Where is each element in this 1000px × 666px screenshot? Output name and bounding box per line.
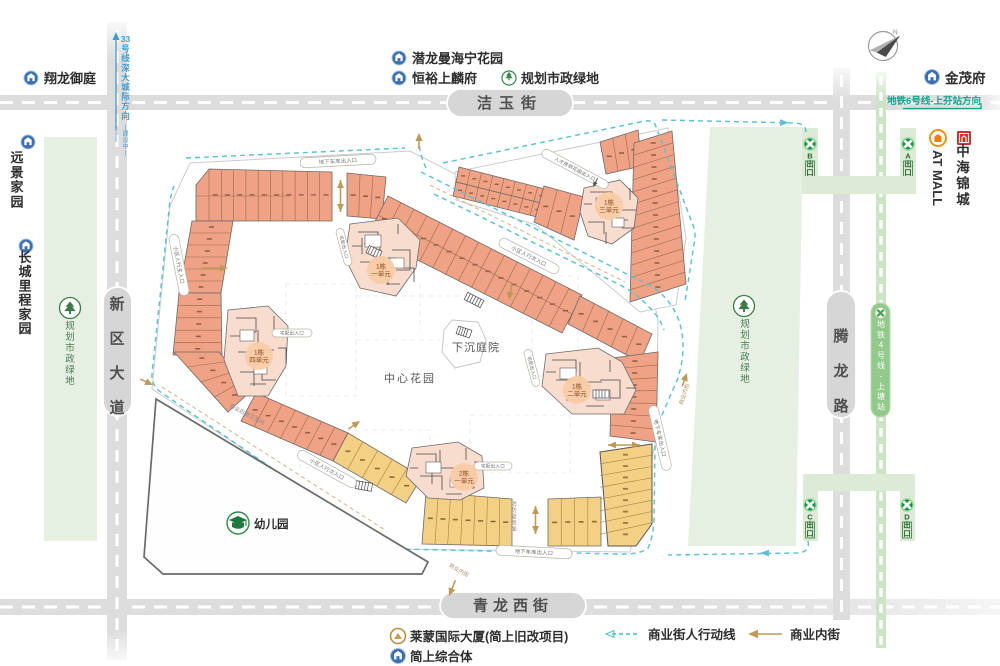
svg-text:家: 家 [18, 307, 32, 322]
svg-text:锦: 锦 [956, 175, 970, 191]
svg-text:大: 大 [121, 72, 130, 82]
svg-text:塘: 塘 [877, 391, 885, 401]
svg-text:地: 地 [877, 319, 885, 329]
svg-text:莱蒙国际大厦(简上旧改项目): 莱蒙国际大厦(简上旧改项目) [410, 629, 568, 644]
svg-text:政: 政 [740, 351, 750, 363]
svg-text:地: 地 [65, 375, 75, 387]
svg-text:站: 站 [877, 401, 885, 411]
svg-text:景: 景 [10, 165, 23, 180]
svg-text:区: 区 [109, 331, 124, 348]
svg-text:向: 向 [121, 111, 130, 121]
svg-text:线: 线 [121, 53, 130, 63]
svg-text:洁玉街: 洁玉街 [477, 94, 543, 112]
svg-text:地: 地 [740, 373, 750, 385]
svg-text:潜龙曼海宁花园: 潜龙曼海宁花园 [412, 51, 503, 66]
svg-text:新: 新 [109, 295, 124, 313]
svg-text:海: 海 [956, 159, 970, 175]
svg-text:宅配出入口: 宅配出入口 [481, 463, 505, 470]
svg-text:一单元: 一单元 [454, 476, 474, 485]
svg-text:青龙西街: 青龙西街 [473, 597, 553, 615]
svg-text:建: 建 [122, 130, 128, 138]
svg-text:4: 4 [879, 341, 884, 350]
svg-text:中: 中 [956, 143, 970, 159]
svg-text:腾: 腾 [832, 327, 849, 345]
svg-text:铁: 铁 [877, 329, 885, 339]
svg-text:口: 口 [904, 168, 912, 177]
svg-text:2栋: 2栋 [459, 469, 470, 478]
svg-text:家: 家 [10, 180, 24, 195]
svg-text:绿: 绿 [65, 364, 75, 376]
svg-text:道: 道 [109, 399, 124, 417]
svg-text:中心花园: 中心花园 [384, 372, 436, 385]
svg-text:简上综合体: 简上综合体 [410, 649, 473, 664]
svg-text:设: 设 [122, 136, 128, 144]
svg-text:(: ( [125, 125, 127, 131]
svg-text:消: 消 [511, 500, 517, 508]
svg-text:幼儿园: 幼儿园 [254, 517, 289, 531]
svg-text:宅配出入口: 宅配出入口 [280, 330, 304, 337]
svg-text:面: 面 [511, 526, 517, 533]
svg-text:): ) [125, 151, 127, 157]
svg-text:1栋: 1栋 [376, 262, 387, 271]
svg-text:市: 市 [65, 342, 75, 354]
svg-text:1栋: 1栋 [254, 348, 265, 357]
svg-text:城: 城 [121, 82, 130, 92]
svg-text:城: 城 [18, 264, 31, 279]
svg-text:远: 远 [10, 150, 23, 165]
svg-text:商业街人行动线: 商业街人行动线 [648, 627, 736, 642]
svg-text:N: N [893, 29, 898, 36]
svg-text:地铁6号线-上芬站方向: 地铁6号线-上芬站方向 [887, 95, 981, 107]
svg-text:号: 号 [877, 351, 885, 360]
svg-text:商业内街: 商业内街 [790, 627, 841, 642]
svg-text:四单元: 四单元 [249, 355, 269, 364]
svg-text:中: 中 [122, 143, 128, 151]
svg-text:规划市政绿地: 规划市政绿地 [521, 71, 599, 86]
svg-text:线: 线 [877, 360, 885, 370]
svg-text:园: 园 [18, 321, 31, 336]
svg-text:高: 高 [511, 519, 517, 527]
svg-text:龙: 龙 [832, 362, 848, 380]
svg-text:城: 城 [956, 191, 970, 207]
svg-text:政: 政 [65, 353, 75, 365]
svg-text:口: 口 [903, 529, 911, 538]
svg-text:里: 里 [18, 278, 31, 293]
svg-text:市: 市 [740, 340, 750, 352]
svg-text:一单元: 一单元 [371, 269, 391, 278]
svg-text:1栋: 1栋 [572, 382, 583, 391]
svg-text:口: 口 [806, 529, 814, 538]
svg-text:绿: 绿 [740, 362, 750, 374]
svg-text:恒裕上麟府: 恒裕上麟府 [412, 71, 477, 86]
svg-text:口: 口 [806, 168, 814, 177]
svg-text:33: 33 [121, 34, 131, 44]
svg-text:程: 程 [18, 293, 31, 308]
svg-text:二单元: 二单元 [567, 389, 587, 398]
svg-text:上: 上 [877, 382, 885, 391]
svg-text:登: 登 [511, 512, 517, 520]
svg-text:深: 深 [121, 63, 130, 73]
svg-text:翔龙御庭: 翔龙御庭 [43, 71, 97, 86]
svg-text:规: 规 [740, 319, 750, 330]
svg-text:方: 方 [121, 101, 130, 111]
svg-text:长: 长 [18, 250, 32, 265]
svg-text:AT MALL: AT MALL [930, 150, 945, 206]
svg-text:路: 路 [833, 397, 849, 415]
svg-text:划: 划 [740, 329, 750, 341]
svg-text:下沉庭院: 下沉庭院 [452, 340, 500, 354]
svg-text:-: - [880, 372, 883, 381]
svg-text:防: 防 [511, 506, 517, 514]
svg-text:号: 号 [121, 44, 130, 54]
svg-text:金茂府: 金茂府 [944, 70, 986, 86]
svg-text:1栋: 1栋 [604, 198, 615, 207]
svg-text:划: 划 [65, 331, 75, 343]
svg-text:园: 园 [10, 194, 23, 209]
svg-text:规: 规 [65, 321, 75, 332]
svg-text:际: 际 [121, 92, 130, 102]
svg-text:大: 大 [109, 364, 124, 382]
svg-text:三单元: 三单元 [599, 205, 619, 214]
